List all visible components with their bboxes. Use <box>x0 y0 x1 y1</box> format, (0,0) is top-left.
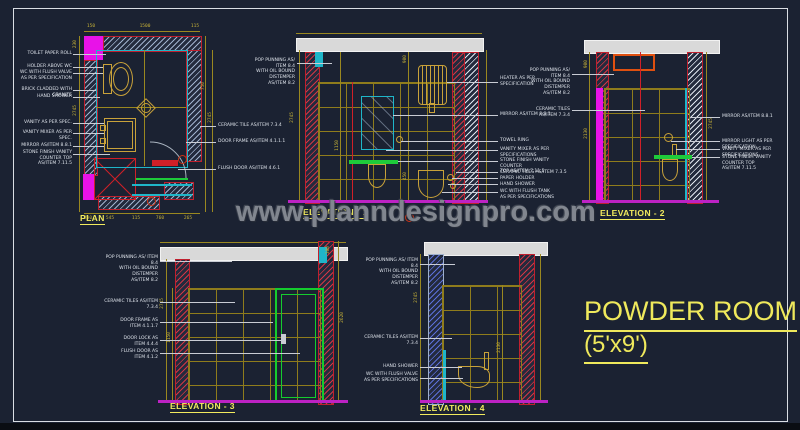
leader-line <box>692 157 720 158</box>
dim-label: 230 <box>73 40 78 48</box>
dim-label: 2745 <box>160 298 165 309</box>
dim-label: 115 <box>186 24 204 29</box>
leader-line <box>297 63 332 64</box>
dim-label: 115 <box>128 216 144 221</box>
dim-line <box>212 50 213 212</box>
leader-line <box>420 367 462 368</box>
elevation4-title: ELEVATION - 4 <box>420 403 485 415</box>
leader-line <box>401 141 498 142</box>
elevation-label: HAND SHOWER <box>500 182 570 188</box>
plan-label: VANITY MIXER AS PER SPEC. <box>12 130 72 141</box>
leader-line <box>73 123 104 124</box>
leader-line <box>160 353 300 354</box>
el3-door-panel <box>281 294 316 398</box>
el1-basin <box>368 164 386 188</box>
dim-label: 2745 <box>290 112 295 123</box>
dim-label: 2745 <box>414 292 419 303</box>
leader-line <box>73 133 104 134</box>
el1-column-right-outer <box>464 52 479 204</box>
dim-label: 150 <box>82 24 100 29</box>
el1-wc <box>418 170 444 198</box>
plan-vanity-tap <box>100 138 106 144</box>
el2-floor-line <box>582 200 719 203</box>
el1-pvc-duct <box>315 52 323 67</box>
elevation2-title: ELEVATION - 2 <box>600 208 665 220</box>
dim-line <box>296 33 482 34</box>
elevation-label: CERAMIC TILES AS/ITEM 7.3.4 <box>362 335 418 346</box>
el2-louver-window <box>613 54 655 71</box>
elevation-label: VANITY MIXER AS PER SPECIFICATIONS <box>500 147 570 158</box>
dim-line <box>205 36 206 212</box>
bottom-band <box>0 423 800 430</box>
leader-line <box>398 161 498 162</box>
dim-label: 760 <box>152 216 168 221</box>
leader-line <box>420 338 452 339</box>
el2-magenta-strip <box>596 88 603 202</box>
el4-wc-flush-pipe <box>484 352 489 370</box>
plan-wall-right <box>186 50 202 162</box>
plan-label: FLUSH DOOR AS/ITEM 4.6.1 <box>218 166 288 172</box>
plan-title: PLAN <box>80 213 105 225</box>
leader-line <box>73 97 100 98</box>
dim-label: 900 <box>584 60 589 68</box>
plan-threshold-band <box>132 184 192 196</box>
leader-line <box>73 146 104 147</box>
elevation-label: POP PUNNING AS/ ITEM 8.4 WITH OIL BOUND … <box>362 258 418 286</box>
leader-line <box>420 264 455 265</box>
leader-line <box>160 322 273 323</box>
elevation3-title: ELEVATION - 3 <box>170 401 235 413</box>
leader-line <box>572 110 645 111</box>
dim-line <box>540 254 541 402</box>
el2-tile-grid <box>604 88 690 202</box>
dim-line <box>502 285 503 400</box>
floor-drain-circle-icon <box>141 103 151 113</box>
dim-line <box>172 288 173 402</box>
section-marker-icon <box>147 197 156 206</box>
elevation-label: POP PUNNING AS/ ITEM 8.4 WITH OIL BOUND … <box>522 68 570 96</box>
leader-line <box>452 178 498 179</box>
cad-drawing-sheet: 150 1500 115 230 545 115 760 265 230 274… <box>0 0 800 430</box>
elevation-label: CERAMIC TILES AS/ITEM 7.3.4 <box>100 299 158 310</box>
el1-water-heater <box>418 65 447 105</box>
plan-label: MIRROR AS/ITEM 8.8.1 <box>12 143 72 149</box>
el1-mirror <box>361 96 394 150</box>
elevation-label: MIRROR AS/ITEM 8.8.1 <box>722 114 790 120</box>
elevation-label: PAPER HOLDER <box>500 176 570 182</box>
leader-line <box>420 378 463 379</box>
elevation-label: DOOR FRAME AS ITEM 4.1.1.7 <box>100 318 158 329</box>
dim-label: 1150 <box>335 140 340 151</box>
plan-door-leaf <box>152 160 178 166</box>
dim-line <box>79 36 80 212</box>
leader-line <box>160 340 283 341</box>
el4-cyan-pipe <box>443 350 446 400</box>
el1-red-line <box>352 82 353 200</box>
leader-line <box>448 184 498 185</box>
leader-line <box>178 169 216 170</box>
plan-label: WC WITH FLUSH VALVE AS PER SPECIFICATION <box>12 70 72 81</box>
plan-vanity-basin <box>107 121 133 149</box>
leader-line <box>386 150 498 151</box>
plan-label: STONE FINISH VANITY COUNTER TOP AS/ITEM … <box>12 150 72 167</box>
leader-line <box>186 142 216 143</box>
dim-line <box>706 52 707 202</box>
el1-heater-pipe <box>429 103 435 113</box>
plan-label: TOILET PAPER ROLL <box>12 51 72 57</box>
elevation-label: CERAMIC TILES AS/ITEM 7.3.5 <box>500 170 570 176</box>
leader-line <box>73 73 103 74</box>
plan-label: VANITY AS PER SPEC. <box>12 120 72 126</box>
dim-line <box>408 52 409 200</box>
leader-line <box>671 141 720 142</box>
elevation-label: POP PUNNING AS/ ITEM 8.4 WITH OIL BOUND … <box>245 58 295 86</box>
leader-line <box>73 54 106 55</box>
watermark: www.planndesignpro.com <box>236 196 596 229</box>
leader-line <box>456 172 498 173</box>
elevation-label: TOWEL RING <box>500 138 570 144</box>
plan-label: DOOR FRAME AS/ITEM 4.1.1.1 <box>218 139 288 145</box>
plan-label: HOLDER ABOVE WC <box>12 64 72 70</box>
dim-label: 750 <box>201 82 206 90</box>
elevation-label: STONE FINISH VANITY COUNTER TOP AS/ITEM … <box>722 155 790 172</box>
plan-vanity-tap <box>100 125 106 131</box>
dim-label: 1150 <box>167 332 172 343</box>
el2-basin <box>662 159 678 181</box>
dim-label: 2130 <box>584 128 589 139</box>
elevation-label: POP PUNNING AS/ ITEM 8.4 WITH OIL BOUND … <box>100 255 158 283</box>
leader-line <box>73 154 110 155</box>
dim-line <box>340 52 341 200</box>
dim-label: 2620 <box>340 312 345 323</box>
leader-line <box>393 115 498 116</box>
el1-ceiling-slab <box>296 38 484 52</box>
el2-cyan-line <box>685 88 687 200</box>
room-name: POWDER ROOM <box>584 296 797 332</box>
dim-line <box>420 254 421 402</box>
leader-line <box>690 117 720 118</box>
dim-label: 450 <box>403 172 408 180</box>
room-size: (5'x9') <box>584 331 648 364</box>
leader-line <box>447 82 498 83</box>
dim-label: 265 <box>180 216 196 221</box>
elevation-label: FLUSH DOOR AS ITEM 4.1.2 <box>100 349 158 360</box>
elevation-label: WC WITH FLUSH VALVE AS PER SPECIFICATION… <box>362 372 418 383</box>
leader-line <box>160 302 235 303</box>
leader-line <box>73 67 103 68</box>
leader-line <box>572 74 614 75</box>
plan-label: CERAMIC TILE AS/ITEM 7.3.4 <box>218 123 288 129</box>
dim-label: 2745 <box>709 118 714 129</box>
plan-label: HAND SHOWER <box>12 94 72 100</box>
dim-label: 2745 <box>208 112 213 123</box>
dim-label: 2130 <box>497 342 502 353</box>
dim-label: 2745 <box>73 105 78 116</box>
plan-wc-bowl-inner <box>113 67 129 91</box>
leader-line <box>160 261 232 262</box>
leader-line <box>442 192 498 193</box>
dim-label: 1500 <box>133 24 157 29</box>
leader-line <box>200 126 216 127</box>
dim-label: 300 <box>326 246 331 254</box>
dim-label: 900 <box>403 55 408 63</box>
door-lock-icon <box>281 334 286 344</box>
dim-line <box>486 50 487 202</box>
leader-line <box>676 149 720 150</box>
el2-red-line <box>640 52 641 200</box>
plan-wall-magenta-bottom <box>83 174 94 200</box>
leader-line <box>73 90 96 91</box>
dim-line <box>299 50 300 202</box>
elevation-label: DOOR LOCK AS ITEM 4.4.4 <box>100 336 158 347</box>
plan-door-threshold <box>136 178 188 180</box>
dim-line <box>84 31 200 32</box>
elevation-label: HAND SHOWER <box>362 364 418 370</box>
elevation-label: CERAMIC TILES AS/ITEM 7.3.4 <box>522 107 570 118</box>
section-marker-icon <box>178 155 187 164</box>
dim-line <box>338 241 339 403</box>
